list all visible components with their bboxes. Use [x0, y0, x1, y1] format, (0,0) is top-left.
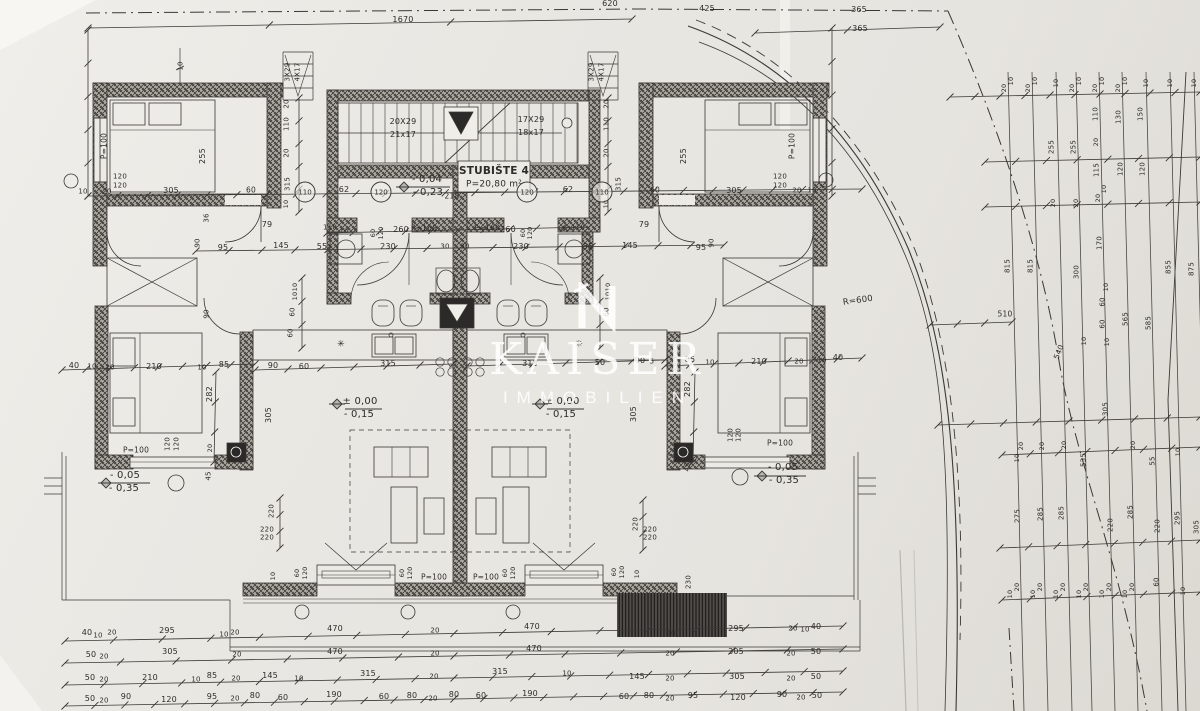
dimension-label: - 0,23	[413, 188, 443, 198]
dimension-label: 62	[339, 186, 350, 194]
dimension-label: 10	[1167, 79, 1174, 88]
dimension-label: 60	[1154, 577, 1161, 586]
dimension-label: - 0,35	[769, 476, 799, 486]
dimension-label: 55	[1150, 456, 1157, 465]
dimension-label: 120	[113, 183, 127, 190]
dimension-label: 50	[595, 359, 606, 367]
dimension-label: 60	[502, 569, 509, 578]
dimension-label: 10	[340, 228, 349, 235]
dimension-label: 60	[246, 186, 256, 194]
dimension-label: 220	[1155, 519, 1162, 533]
dimension-label: 145	[622, 242, 638, 250]
dimension-label: 230	[686, 575, 693, 589]
dimension-label: 20X29	[390, 118, 417, 126]
dimension-label: 10	[1180, 587, 1187, 596]
dimension-label: 10	[1175, 448, 1182, 457]
dimension-label: 10	[1081, 337, 1088, 346]
dimension-label: 120	[302, 566, 309, 579]
dimension-label: 220	[633, 517, 640, 531]
dimension-label: 18x17	[518, 129, 544, 137]
dimension-label: 40	[82, 629, 93, 637]
dimension-label: 60	[294, 569, 301, 578]
dimension-label: 20	[1129, 583, 1136, 592]
dimension-label: 90	[204, 309, 211, 318]
dimension-label: 220	[643, 535, 657, 542]
dimension-label: 218	[445, 192, 460, 200]
dimension-label: 10	[817, 358, 826, 365]
dimension-label: 510	[998, 310, 1013, 318]
dimension-label: 220	[260, 527, 274, 534]
dimension-label: 5	[650, 359, 655, 366]
dimension-label: 10	[270, 572, 277, 581]
dimension-label: 282	[684, 381, 692, 397]
dimension-label: 120	[174, 437, 181, 451]
dimension-label: - 0,04	[412, 175, 442, 185]
dimension-label: 120	[407, 566, 414, 579]
dimension-label: 20	[230, 696, 239, 703]
floor-plan-scan: 6201670425365365103X294X173X294X1720X292…	[0, 0, 1200, 711]
dimension-label: 60	[619, 693, 630, 701]
dimension-label: 45	[206, 471, 213, 480]
dimension-label: 10	[87, 364, 96, 371]
dimension-label: 55	[317, 243, 328, 251]
dimension-label: 10	[178, 61, 185, 70]
dimension-label: 875	[1189, 262, 1196, 276]
dimension-label: 10	[1053, 79, 1060, 88]
dimension-label: 20	[792, 188, 801, 195]
dimension-label: 425	[699, 5, 715, 13]
staircase-area: P=20,80 m²	[466, 181, 522, 190]
dimension-label: 305	[265, 407, 273, 423]
dimension-label: 620	[602, 0, 618, 8]
dimension-label: 120	[527, 226, 534, 239]
dimension-label: 220	[269, 504, 276, 518]
dimension-label: 470	[327, 648, 343, 656]
dimension-label: 120	[165, 437, 172, 451]
dimension-label: 20	[1039, 442, 1046, 451]
dimension-label: 305	[726, 187, 742, 195]
dimension-label: 20	[786, 651, 795, 658]
dimension-label: 60	[290, 307, 297, 316]
dimension-label: 220	[1108, 518, 1115, 532]
dimension-label: 170	[1097, 236, 1104, 250]
dimension-label: P=100	[767, 439, 793, 447]
dimension-label: 285	[1059, 506, 1066, 520]
dimension-label: 285	[1128, 505, 1135, 519]
dimension-label: 50	[86, 651, 97, 659]
dimension-label: 30	[440, 244, 449, 251]
dimension-label: 10	[807, 188, 816, 195]
dimension-label: 45	[685, 462, 692, 471]
dimension-label: 255	[1049, 140, 1056, 154]
dimension-label: 90	[268, 362, 279, 370]
dimension-label: 120	[1118, 162, 1125, 176]
dimension-label: 145	[629, 673, 645, 681]
dimension-label: - 0,35	[109, 484, 139, 494]
dimension-label: 20	[786, 676, 795, 683]
dimension-label: 90	[635, 357, 646, 365]
dimension-label: 95	[218, 244, 229, 252]
dimension-label: 20	[428, 696, 437, 703]
dimension-label: 60	[650, 186, 660, 194]
dimension-label: 20	[1095, 194, 1102, 203]
dimension-label: 90	[709, 238, 716, 247]
dimension-label: 120	[730, 694, 746, 702]
dimension-label: P=160	[411, 224, 437, 232]
dimension-label: 17X29	[518, 116, 545, 124]
dimension-label: 60	[379, 693, 390, 701]
dimension-label: 60	[604, 307, 611, 316]
dimension-label: 255	[1071, 140, 1078, 154]
dimension-label: 20	[1050, 199, 1057, 208]
dimension-label: 210	[146, 363, 162, 371]
dimension-label: 260	[500, 226, 516, 234]
dimension-label: 20	[794, 359, 803, 366]
dimension-label: 10	[1076, 77, 1083, 86]
dimension-label: P=100	[421, 573, 447, 581]
dimension-label: 90	[195, 238, 202, 247]
dimension-label: 36	[204, 213, 211, 222]
dimension-label: 585	[1146, 316, 1153, 330]
dimension-label: 10	[562, 671, 571, 678]
dimension-label: 50	[811, 673, 822, 681]
dimension-label: 295	[728, 625, 744, 633]
dimension-label: ✳	[337, 341, 345, 350]
dimension-label: 60	[278, 694, 289, 702]
dimension-label: 60	[299, 363, 310, 371]
dimension-label: 20	[1037, 583, 1044, 592]
dimension-label: 855	[1166, 260, 1173, 274]
dimension-label: 120	[773, 183, 787, 190]
dimension-label: 62	[563, 186, 574, 194]
dimension-label: P=100	[123, 446, 149, 454]
dimension-label: 10	[1143, 79, 1150, 88]
dimension-label: 20	[284, 99, 291, 108]
dimension-label: 20	[105, 365, 114, 372]
dimension-label: 10	[292, 292, 299, 301]
column-axis-marker: 110	[592, 182, 613, 203]
dimension-label: 10	[294, 676, 303, 683]
dimension-label: 90	[121, 693, 132, 701]
dimension-label: 315	[616, 177, 623, 191]
dimension-label: 80	[250, 692, 261, 700]
dimension-label: 80	[407, 692, 418, 700]
dimension-label: 10	[1008, 77, 1015, 86]
dimension-label: 20	[99, 698, 108, 705]
dimension-label: 255	[199, 148, 207, 164]
dimension-label: 275	[1015, 509, 1022, 523]
dimension-label: 10	[1101, 185, 1108, 194]
dimension-label: P=100	[473, 573, 499, 581]
dimension-label: 190	[326, 691, 342, 699]
dimension-label: 10	[605, 292, 612, 301]
dimension-label: 285	[1038, 507, 1045, 521]
staircase-title: STUBIŠTE 4	[459, 166, 529, 177]
dimension-label: 60	[370, 229, 377, 238]
dimension-label: 60	[1100, 319, 1107, 328]
dimension-label: 10	[605, 283, 612, 292]
dimension-label: 20	[102, 189, 111, 196]
dimension-label: 220	[643, 527, 657, 534]
dimension-label: 210	[751, 358, 767, 366]
dimension-label: 20	[665, 651, 674, 658]
dimension-label: 470	[526, 645, 542, 653]
dimension-label: 305	[1194, 520, 1200, 534]
dimension-label: 20	[230, 630, 239, 637]
dimension-label: 10	[1099, 77, 1106, 86]
dimension-label: 10	[219, 632, 228, 639]
dimension-label: 95	[207, 693, 218, 701]
dimension-label: 20	[1018, 442, 1025, 451]
dimension-label: 295	[1175, 511, 1182, 525]
dimension-label: 40	[811, 623, 822, 631]
dimension-label: 20	[1106, 583, 1113, 592]
dimension-label: 4X17	[295, 63, 302, 82]
dimension-label: 60	[1100, 297, 1107, 306]
dimension-label: 220	[260, 535, 274, 542]
dimension-label: 282	[206, 386, 214, 402]
dimension-label: 305	[163, 187, 179, 195]
dimension-label: 10	[292, 283, 299, 292]
dimension-label: 20	[284, 148, 291, 157]
dimension-label: 10	[191, 677, 200, 684]
dimension-label: - 0,05	[110, 471, 140, 481]
dimension-label: 815	[1005, 259, 1012, 273]
dimension-label: 4X17	[599, 63, 606, 82]
dimension-label: 10	[283, 200, 290, 209]
dimension-label: ± 0,00	[544, 397, 579, 407]
dimension-label: 115	[1094, 163, 1101, 177]
dimension-label: 85	[207, 672, 218, 680]
dimension-label: 40	[69, 362, 80, 370]
dimension-label: 230	[380, 243, 396, 251]
dimension-label: 305	[162, 648, 178, 656]
column-axis-marker: 110	[295, 182, 316, 203]
dimension-label: P=100	[788, 133, 796, 159]
dimension-label: 110	[571, 225, 585, 232]
dimension-label: 20	[232, 652, 241, 659]
dimension-label: 130	[1116, 110, 1123, 124]
dimension-label: - 0,15	[344, 410, 374, 420]
dimension-label: 120	[1140, 162, 1147, 176]
dimension-label: 20	[666, 631, 675, 638]
dimension-label: 80	[644, 692, 655, 700]
dimension-label: 20	[1093, 138, 1100, 147]
dimension-label: 110	[604, 117, 611, 131]
dimension-label: 95	[696, 244, 707, 252]
dimension-label: R=600	[842, 295, 873, 308]
dimension-label: 10	[705, 360, 714, 367]
dimension-label: 10	[1122, 77, 1129, 86]
dimension-label: 300	[1074, 265, 1081, 279]
dimension-label: 120	[510, 566, 517, 579]
dimension-label: 60	[399, 569, 406, 578]
dimension-label: 60	[611, 568, 618, 577]
dimension-label: 20	[604, 148, 611, 157]
dimension-label: 295	[159, 627, 175, 635]
dimension-labels-layer: 6201670425365365103X294X173X294X1720X292…	[0, 0, 1200, 711]
dimension-label: 85	[219, 361, 230, 369]
dimension-label: 50	[85, 695, 96, 703]
dimension-label: 365	[852, 25, 868, 33]
dimension-label: 21x17	[390, 131, 416, 139]
dimension-label: 110	[1093, 107, 1100, 121]
dimension-label: 10	[1032, 77, 1039, 86]
dimension-label: 315	[492, 668, 508, 676]
dimension-label: 20	[1061, 441, 1068, 450]
dimension-label: 20	[1014, 583, 1021, 592]
dimension-label: 305	[728, 648, 744, 656]
dimension-label: 120	[736, 428, 743, 442]
dimension-label: ✳	[575, 341, 583, 350]
dimension-label: 315	[522, 360, 538, 368]
dimension-label: 30	[460, 244, 469, 251]
dimension-label: 40	[833, 354, 844, 362]
dimension-label: 20	[107, 630, 116, 637]
dimension-label: 145	[273, 242, 289, 250]
dimension-label: 150	[1138, 107, 1145, 121]
dimension-label: 80	[449, 691, 460, 699]
dimension-label: 55	[583, 243, 594, 251]
dimension-label: 50	[811, 648, 822, 656]
dimension-label: 79	[639, 221, 650, 229]
dimension-label: 305	[630, 406, 638, 422]
dimension-label: 540	[1053, 344, 1066, 361]
dimension-label: 120	[728, 428, 735, 442]
dimension-label: 255	[680, 148, 688, 164]
dimension-label: 20	[788, 626, 797, 633]
dimension-label: 10	[78, 189, 87, 196]
dimension-label: 20	[665, 676, 674, 683]
dimension-label: 60	[476, 692, 487, 700]
dimension-label: 470	[327, 625, 343, 633]
dimension-label: 120	[113, 174, 127, 181]
dimension-label: 470	[524, 623, 540, 631]
dimension-label: 315	[360, 670, 376, 678]
dimension-label: 190	[522, 690, 538, 698]
dimension-label: 20	[665, 696, 674, 703]
dimension-label: 20	[604, 99, 611, 108]
column-axis-marker: 120	[371, 182, 392, 203]
dimension-label: 210	[142, 674, 158, 682]
dimension-label: 145	[262, 672, 278, 680]
dimension-label: 230	[513, 243, 529, 251]
dimension-label: 50	[812, 692, 823, 700]
dimension-label: 315	[285, 177, 292, 191]
dimension-label: 79	[262, 221, 273, 229]
dimension-label: 85	[685, 356, 696, 364]
dimension-label: 305	[1103, 402, 1110, 416]
dimension-label: 20	[207, 444, 214, 453]
dimension-label: 20	[430, 628, 439, 635]
dimension-label: - 0,05	[768, 463, 798, 473]
dimension-label: 1670	[392, 16, 413, 24]
dimension-label: 60	[288, 328, 295, 337]
dimension-label: 535	[1081, 453, 1088, 467]
dimension-label: 315	[380, 360, 396, 368]
dimension-label: 815	[1028, 259, 1035, 273]
dimension-label: 110	[284, 117, 291, 131]
dimension-label: 565	[1123, 312, 1130, 326]
dimension-label: 20	[1083, 583, 1090, 592]
dimension-label: 10	[1104, 338, 1111, 347]
dimension-label: 10	[1014, 454, 1021, 463]
dimension-label: 3X29	[285, 63, 292, 82]
dimension-label: - 0,15	[546, 410, 576, 420]
dimension-label: 50	[85, 674, 96, 682]
dimension-label: 20	[429, 674, 438, 681]
dimension-label: 20	[796, 695, 805, 702]
dimension-label: 20	[1060, 583, 1067, 592]
dimension-label: 20	[1130, 441, 1137, 450]
dimension-label: ± 0,00	[342, 397, 377, 407]
dimension-label: 10	[1191, 79, 1198, 88]
dimension-label: 305	[729, 673, 745, 681]
dimension-label: 10	[1103, 283, 1110, 292]
dimension-label: 10	[197, 365, 206, 372]
dimension-label: 260	[393, 226, 409, 234]
dimension-label: 90	[777, 691, 788, 699]
dimension-label: 120	[161, 696, 177, 704]
dimension-label: 20	[231, 676, 240, 683]
dimension-label: P=100	[100, 133, 108, 159]
dimension-label: 20	[99, 677, 108, 684]
dimension-label: 20	[1073, 199, 1080, 208]
dimension-label: 120	[773, 174, 787, 181]
dimension-label: 10	[800, 627, 809, 634]
dimension-label: 120	[378, 226, 385, 239]
dimension-label: 20	[430, 651, 439, 658]
dimension-label: 110	[323, 225, 337, 232]
dimension-label: 3X29	[589, 63, 596, 82]
dimension-label: 10	[93, 633, 102, 640]
dimension-label: 10	[562, 226, 571, 233]
dimension-label: P=160	[474, 224, 500, 232]
dimension-label: 10	[634, 570, 641, 579]
dimension-label: 120	[619, 565, 626, 578]
dimension-label: 365	[851, 6, 867, 14]
dimension-label: 20	[99, 654, 108, 661]
dimension-label: 95	[688, 692, 699, 700]
